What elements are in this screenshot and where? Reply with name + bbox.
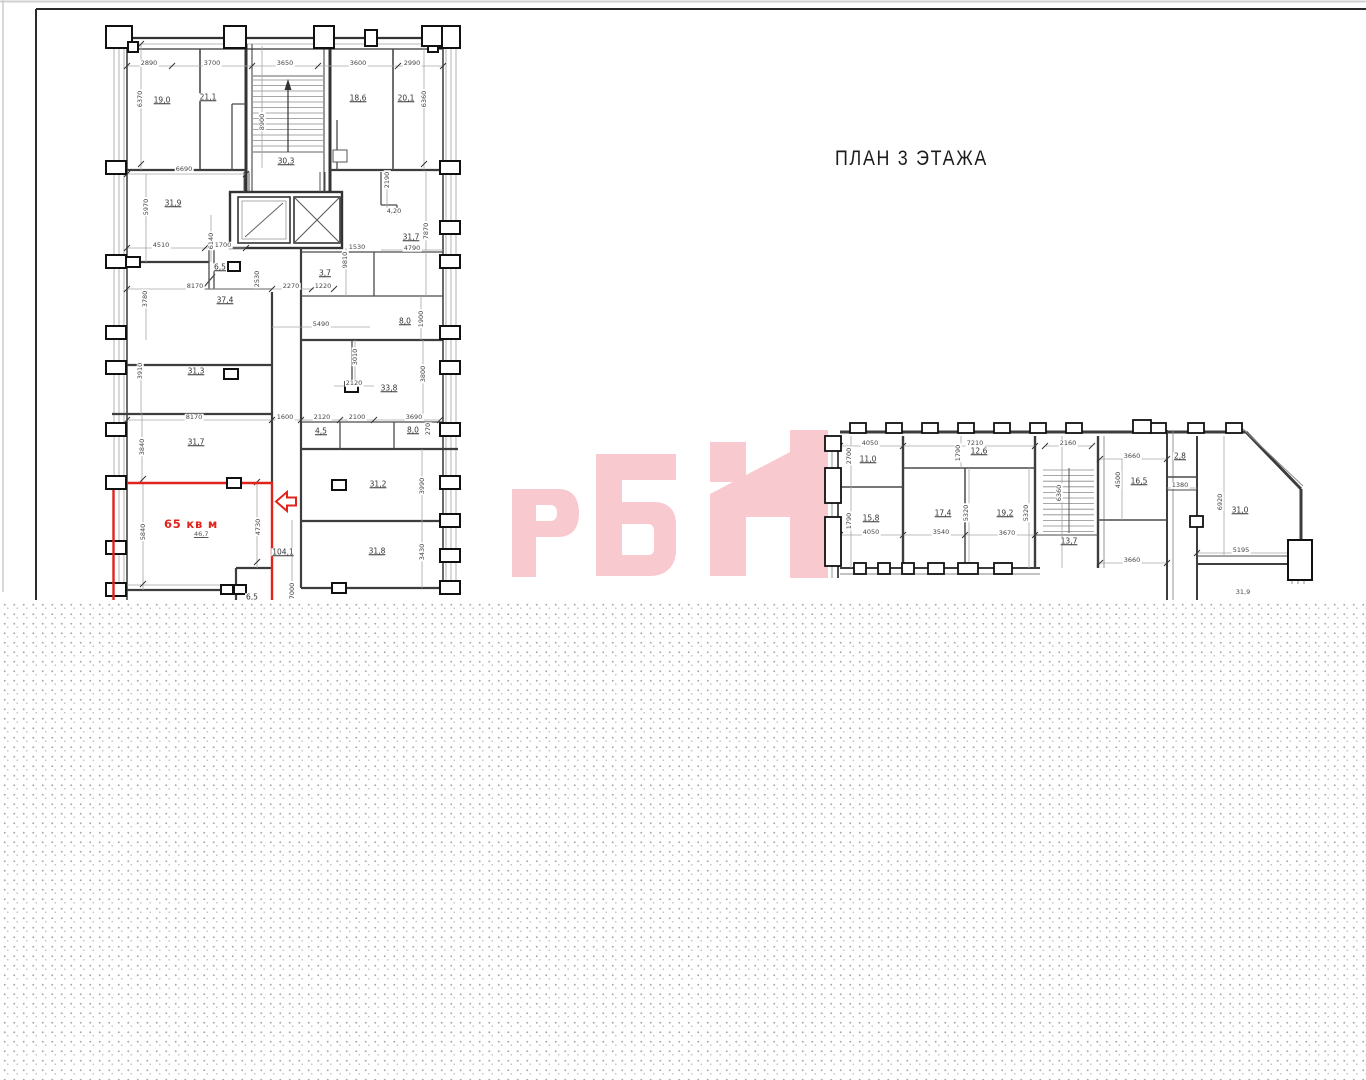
highlight-room-value: 46,7	[194, 530, 208, 538]
highlight-area-label: 65 кв м	[164, 517, 218, 531]
dim-ticks-right	[837, 443, 1293, 566]
highlighted-room	[106, 476, 296, 600]
floor-plan-right	[825, 420, 1312, 600]
sheet-frame	[0, 0, 1366, 600]
floor-plan-left	[106, 26, 460, 600]
left-arrow-icon	[276, 492, 296, 511]
stairwell-right	[1043, 468, 1094, 533]
dimension-lines-right	[840, 436, 1290, 568]
columns-left	[106, 26, 460, 596]
watermark-logo	[512, 430, 828, 578]
floor-plan-sheet: РБН	[0, 0, 1366, 1080]
dotted-background	[0, 600, 1366, 1080]
page-title: ПЛАН 3 ЭТАЖА	[835, 147, 988, 171]
